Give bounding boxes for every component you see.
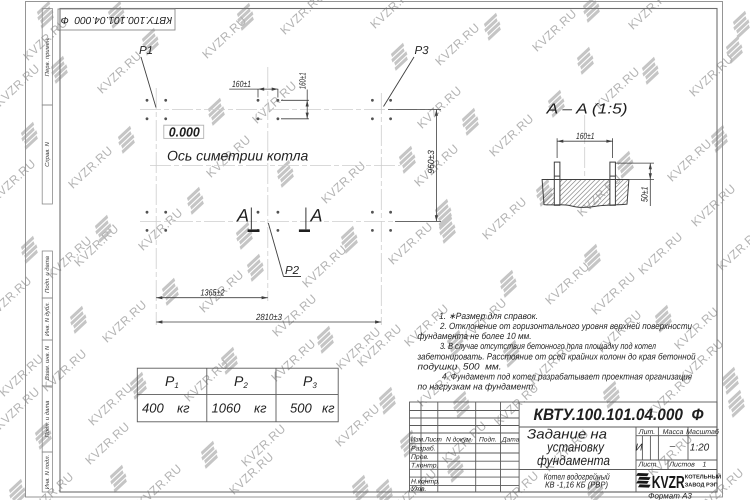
svg-text:4. Фундамент под котел разраб: 4. Фундамент под котел разрабатывает про…	[442, 371, 692, 381]
svg-text:Ось симетрии котла: Ось симетрии котла	[167, 148, 309, 164]
svg-text:2810±3: 2810±3	[255, 312, 282, 322]
svg-text:50±1: 50±1	[639, 187, 649, 203]
svg-text:P1: P1	[139, 45, 153, 57]
svg-text:A: A	[236, 206, 249, 226]
svg-text:A: A	[310, 206, 323, 226]
svg-text:160±1: 160±1	[576, 131, 595, 141]
svg-text:по нагрузкам на фундамент.: по нагрузкам на фундамент.	[418, 381, 536, 391]
svg-text:A – A (1:5): A – A (1:5)	[545, 102, 627, 118]
svg-text:KVZR.RU: KVZR.RU	[414, 83, 464, 131]
svg-text:кг: кг	[177, 401, 190, 416]
svg-text:160±1: 160±1	[297, 72, 307, 89]
svg-text:КВТУ.100.101.04.000 Ф: КВТУ.100.101.04.000 Ф	[534, 406, 704, 424]
svg-text:КВТУ.100.101.04.000 Ф: КВТУ.100.101.04.000 Ф	[61, 14, 172, 25]
svg-text:KVZR.RU: KVZR.RU	[134, 461, 184, 500]
svg-text:KVZR.RU: KVZR.RU	[0, 273, 34, 321]
svg-text:KVZR.RU: KVZR.RU	[26, 469, 76, 500]
svg-text:KVZR.RU: KVZR.RU	[135, 205, 185, 253]
svg-text:P3: P3	[303, 373, 317, 390]
svg-text:Листов: Листов	[668, 462, 695, 469]
svg-text:KVZR.RU: KVZR.RU	[686, 51, 736, 99]
svg-text:Лит.: Лит.	[638, 429, 655, 436]
svg-text:Утв.: Утв.	[410, 486, 427, 493]
svg-text:кг: кг	[254, 401, 267, 416]
svg-text:P2: P2	[285, 265, 300, 277]
svg-text:KVZR.RU: KVZR.RU	[432, 20, 482, 68]
svg-text:ЗАВОД РЭП: ЗАВОД РЭП	[685, 482, 718, 488]
svg-text:1: 1	[703, 462, 707, 469]
svg-text:Пров.: Пров.	[411, 454, 429, 461]
svg-text:Инв. N подл.: Инв. N подл.	[44, 455, 51, 489]
svg-text:подушки 500 мм.: подушки 500 мм.	[418, 361, 502, 371]
svg-text:KVZR.RU: KVZR.RU	[714, 225, 750, 273]
svg-text:KVZR.RU: KVZR.RU	[99, 297, 149, 345]
svg-text:Лист: Лист	[637, 462, 656, 469]
svg-text:Инв. N дубл.: Инв. N дубл.	[44, 302, 51, 336]
svg-text:Подп. и дата: Подп. и дата	[44, 400, 51, 438]
svg-text:KVZR.RU: KVZR.RU	[486, 111, 536, 159]
svg-text:KVZR.RU: KVZR.RU	[542, 259, 592, 307]
svg-text:P1: P1	[165, 373, 179, 390]
svg-text:1:20: 1:20	[690, 443, 710, 454]
svg-text:1365±2: 1365±2	[201, 287, 225, 297]
svg-text:KVZR.RU: KVZR.RU	[85, 380, 135, 428]
svg-text:кг: кг	[322, 401, 335, 416]
svg-text:KVZR.RU: KVZR.RU	[625, 0, 675, 32]
svg-text:Масштаб: Масштаб	[686, 428, 720, 436]
svg-text:Справ. N: Справ. N	[44, 141, 51, 166]
svg-text:Масса: Масса	[663, 429, 684, 436]
svg-text:KVZR.RU: KVZR.RU	[277, 0, 327, 37]
svg-text:KVZR: KVZR	[652, 472, 685, 492]
svg-text:Перв. примен.: Перв. примен.	[44, 37, 51, 76]
svg-text:KVZR.RU: KVZR.RU	[385, 219, 435, 267]
svg-text:KVZR.RU: KVZR.RU	[367, 0, 417, 31]
svg-text:KVZR.RU: KVZR.RU	[479, 194, 529, 242]
svg-text:KVZR.RU: KVZR.RU	[332, 401, 382, 449]
svg-text:KVZR.RU: KVZR.RU	[529, 6, 579, 54]
svg-text:Подп. и дата: Подп. и дата	[44, 255, 51, 293]
svg-text:KVZR.RU: KVZR.RU	[0, 61, 42, 109]
svg-text:1060: 1060	[212, 401, 242, 416]
svg-text:Т.контр.: Т.контр.	[411, 462, 439, 469]
svg-text:400: 400	[142, 401, 164, 416]
svg-text:KVZR.RU: KVZR.RU	[688, 181, 738, 229]
svg-text:KVZR.RU: KVZR.RU	[82, 419, 132, 467]
svg-text:Изм.Лист: Изм.Лист	[411, 437, 443, 444]
svg-text:И: И	[635, 443, 643, 454]
svg-text:фундамента: фундамента	[537, 453, 610, 468]
svg-text:KVZR.RU: KVZR.RU	[664, 136, 714, 184]
svg-text:забетонировать. Расстояние от: забетонировать. Расстояние от осей крайн…	[417, 351, 696, 361]
svg-text:Разраб.: Разраб.	[411, 446, 436, 453]
svg-text:Формат А3: Формат А3	[648, 492, 692, 500]
svg-text:960±3: 960±3	[426, 150, 436, 174]
svg-text:КОТЕЛЬНЫЙ: КОТЕЛЬНЫЙ	[685, 472, 721, 480]
svg-text:P3: P3	[415, 45, 430, 57]
svg-text:КВ -1,16 КБ (РВР): КВ -1,16 КБ (РВР)	[545, 480, 608, 490]
svg-text:–: –	[669, 441, 676, 452]
svg-text:KVZR.RU: KVZR.RU	[94, 48, 144, 96]
svg-text:3. В случае отсутствия бетонн: 3. В случае отсутствия бетонного пола пл…	[440, 341, 656, 351]
svg-text:KVZR.RU: KVZR.RU	[65, 143, 115, 191]
svg-text:Дата: Дата	[501, 437, 520, 444]
svg-text:N докум.: N докум.	[446, 437, 473, 444]
svg-text:Н.контр.: Н.контр.	[411, 478, 440, 485]
svg-text:160±1: 160±1	[232, 79, 251, 89]
svg-text:0.000: 0.000	[169, 124, 201, 139]
svg-text:Взам. инв. N: Взам. инв. N	[44, 345, 51, 380]
svg-text:KVZR.RU: KVZR.RU	[635, 229, 685, 277]
svg-text:1. ∗Размер для справок.: 1. ∗Размер для справок.	[439, 311, 538, 321]
svg-text:2. Отклонение от горизонтальн: 2. Отклонение от горизонтального уровня …	[439, 321, 692, 331]
svg-text:KVZR.RU: KVZR.RU	[199, 13, 249, 61]
svg-text:Подп.: Подп.	[479, 437, 497, 444]
svg-text:KVZR.RU: KVZR.RU	[299, 242, 349, 290]
svg-text:500: 500	[290, 401, 312, 416]
svg-text:KVZR.RU: KVZR.RU	[491, 468, 541, 500]
svg-text:фундамента не более 10 мм.: фундамента не более 10 мм.	[418, 331, 532, 341]
svg-text:P2: P2	[234, 373, 248, 390]
svg-text:KVZR.RU: KVZR.RU	[0, 156, 38, 204]
